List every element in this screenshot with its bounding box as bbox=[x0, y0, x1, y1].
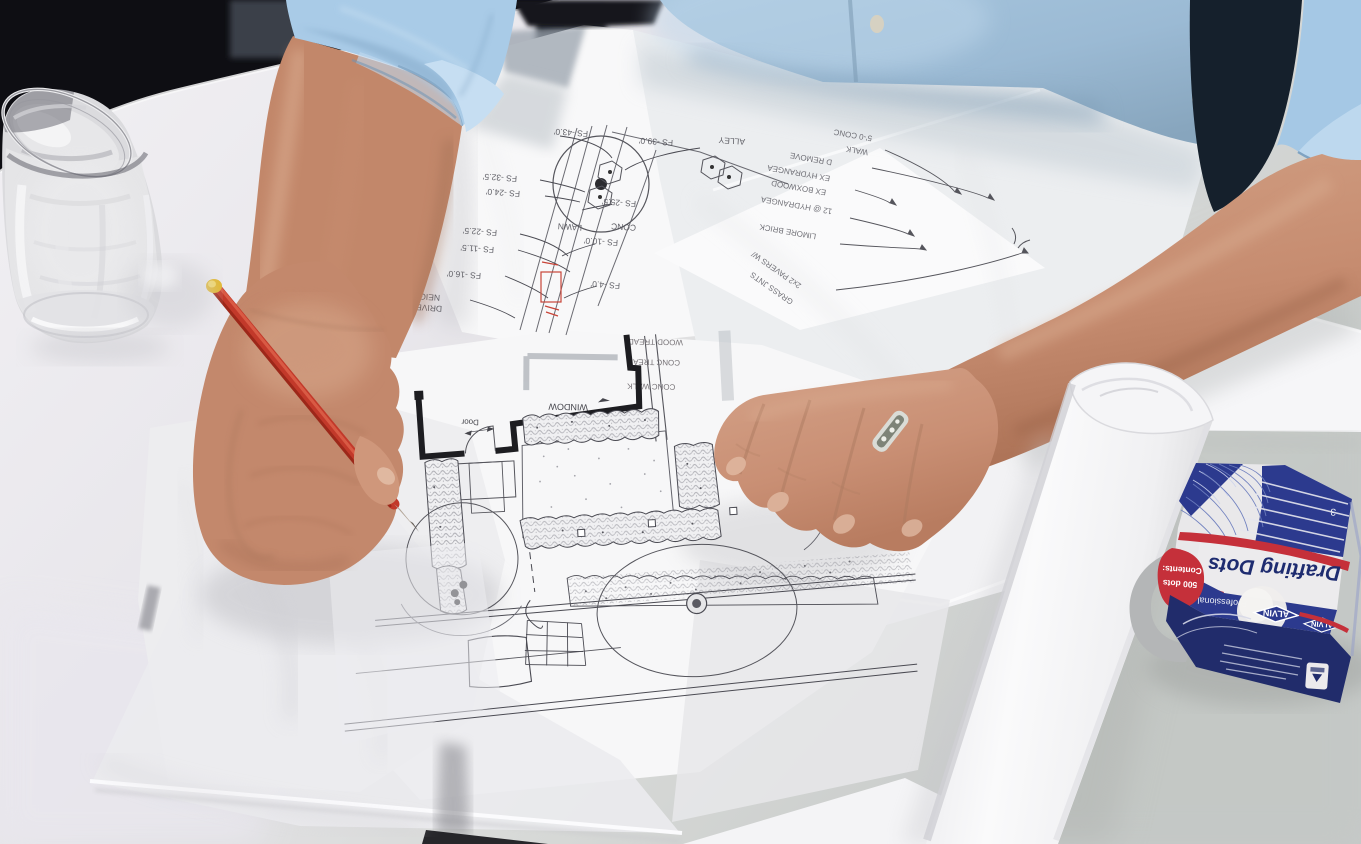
svg-text:FS -4.0': FS -4.0' bbox=[590, 279, 620, 291]
svg-text:CONC WALK: CONC WALK bbox=[626, 382, 675, 392]
svg-text:WOOD TREAD: WOOD TREAD bbox=[628, 337, 683, 347]
svg-text:WINDOW: WINDOW bbox=[548, 402, 588, 413]
svg-text:LAWN: LAWN bbox=[557, 221, 582, 233]
svg-text:ALVIN: ALVIN bbox=[1263, 608, 1290, 620]
svg-text:ALLEY: ALLEY bbox=[718, 135, 745, 147]
svg-text:Door: Door bbox=[461, 417, 479, 426]
svg-text:CONC: CONC bbox=[611, 221, 637, 233]
